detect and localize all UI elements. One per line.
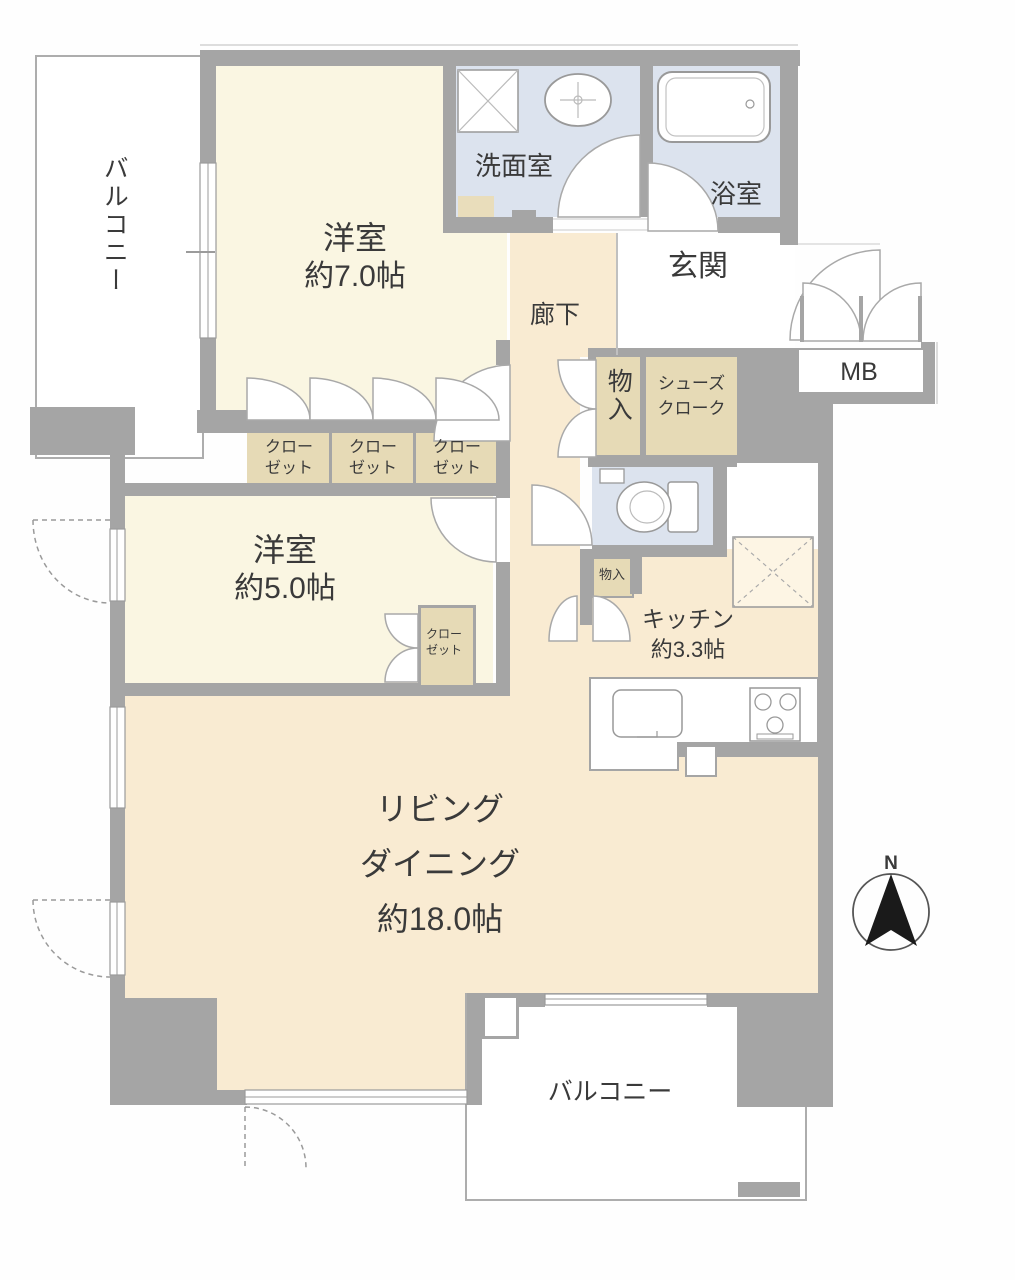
door-bedroom5 — [431, 498, 496, 562]
toilet-icon — [600, 469, 698, 532]
closet2-line2: ゼット — [333, 459, 413, 480]
shoe-closet-line2: クローク — [646, 397, 737, 422]
living-line1: リビング — [290, 782, 590, 837]
kitchen-size: 約3.3帖 — [598, 635, 778, 666]
bedroom5-name: 洋室 — [130, 530, 440, 570]
closet1-line2: ゼット — [249, 459, 329, 480]
shoe-closet-line1: シューズ — [646, 372, 737, 397]
floor-plan: バルコニー 洋室 約7.0帖 洗面室 浴室 玄関 MB 廊下 物入 シューズ ク… — [0, 0, 1015, 1280]
bedroom7-name: 洋室 — [215, 218, 495, 258]
window-left-1 — [110, 529, 125, 601]
window-bedroom7-balcony — [200, 163, 216, 338]
closet2-line1: クロー — [333, 438, 413, 459]
north-label: N — [878, 852, 904, 876]
dashed-arc-left-upper — [33, 520, 110, 603]
washing-machine-pan-icon — [458, 70, 518, 132]
closet1-label: クロー ゼット — [249, 438, 329, 480]
dashed-arc-balcony-door — [245, 1107, 306, 1168]
storage-door-upper — [558, 360, 596, 409]
living-line2: ダイニング — [290, 837, 590, 892]
door-toilet — [532, 485, 592, 545]
window-ld-bottom-right — [545, 994, 707, 1005]
shoe-closet-label: シューズ クローク — [646, 372, 737, 421]
closet1-line1: クロー — [249, 438, 329, 459]
stove-icon — [750, 688, 800, 741]
closet-small-door-lower — [385, 648, 418, 682]
balcony-bottom-label: バルコニー — [465, 1077, 755, 1108]
closet-small-label: クロー ゼット — [420, 626, 468, 658]
wash-basin-icon — [545, 74, 611, 126]
bedroom7-size: 約7.0帖 — [215, 258, 495, 296]
closet3-line1: クロー — [417, 438, 497, 459]
window-left-2 — [110, 707, 125, 808]
closet-door-1 — [247, 378, 310, 420]
bedroom5-label: 洋室 約5.0帖 — [130, 530, 440, 608]
meter-box-label: MB — [797, 357, 921, 388]
storage-small-label: 物入 — [594, 567, 630, 583]
storage-label: 物入 — [602, 368, 633, 424]
north-arrow-icon — [853, 874, 929, 950]
washroom-mat — [458, 196, 494, 217]
bedroom5-size: 約5.0帖 — [130, 570, 440, 608]
living-line3: 約18.0帖 — [290, 892, 590, 947]
kitchen-name: キッチン — [598, 603, 778, 635]
door-corridor-ld — [549, 596, 577, 641]
storage-door-lower — [558, 409, 596, 457]
bathtub-icon — [658, 72, 770, 142]
bathroom-label: 浴室 — [710, 178, 762, 211]
kitchen-label: キッチン 約3.3帖 — [598, 603, 778, 666]
window-ld-bottom-left — [245, 1090, 467, 1104]
dashed-arc-left-lower — [33, 900, 110, 977]
corridor-label: 廊下 — [510, 300, 600, 331]
closet-small-line2: ゼット — [420, 642, 468, 658]
kitchen-pillar — [686, 746, 716, 776]
closet-door-2 — [310, 378, 373, 420]
closet2-label: クロー ゼット — [333, 438, 413, 480]
entrance-label: 玄関 — [668, 248, 728, 286]
closet3-line2: ゼット — [417, 459, 497, 480]
door-bathroom — [648, 163, 718, 231]
living-dining-label: リビング ダイニング 約18.0帖 — [290, 782, 590, 947]
closet-small-door-upper — [385, 614, 418, 648]
bedroom7-label: 洋室 約7.0帖 — [215, 218, 495, 296]
door-washroom — [558, 135, 640, 217]
washroom-label: 洗面室 — [475, 150, 553, 183]
closet-small-line1: クロー — [420, 626, 468, 642]
refrigerator-icon — [733, 537, 813, 607]
window-left-3 — [110, 902, 125, 975]
kitchen-counter-icon — [590, 678, 818, 776]
balcony-top-label: バルコニー — [98, 155, 129, 295]
closet3-label: クロー ゼット — [417, 438, 497, 480]
closet-door-3 — [373, 378, 436, 420]
